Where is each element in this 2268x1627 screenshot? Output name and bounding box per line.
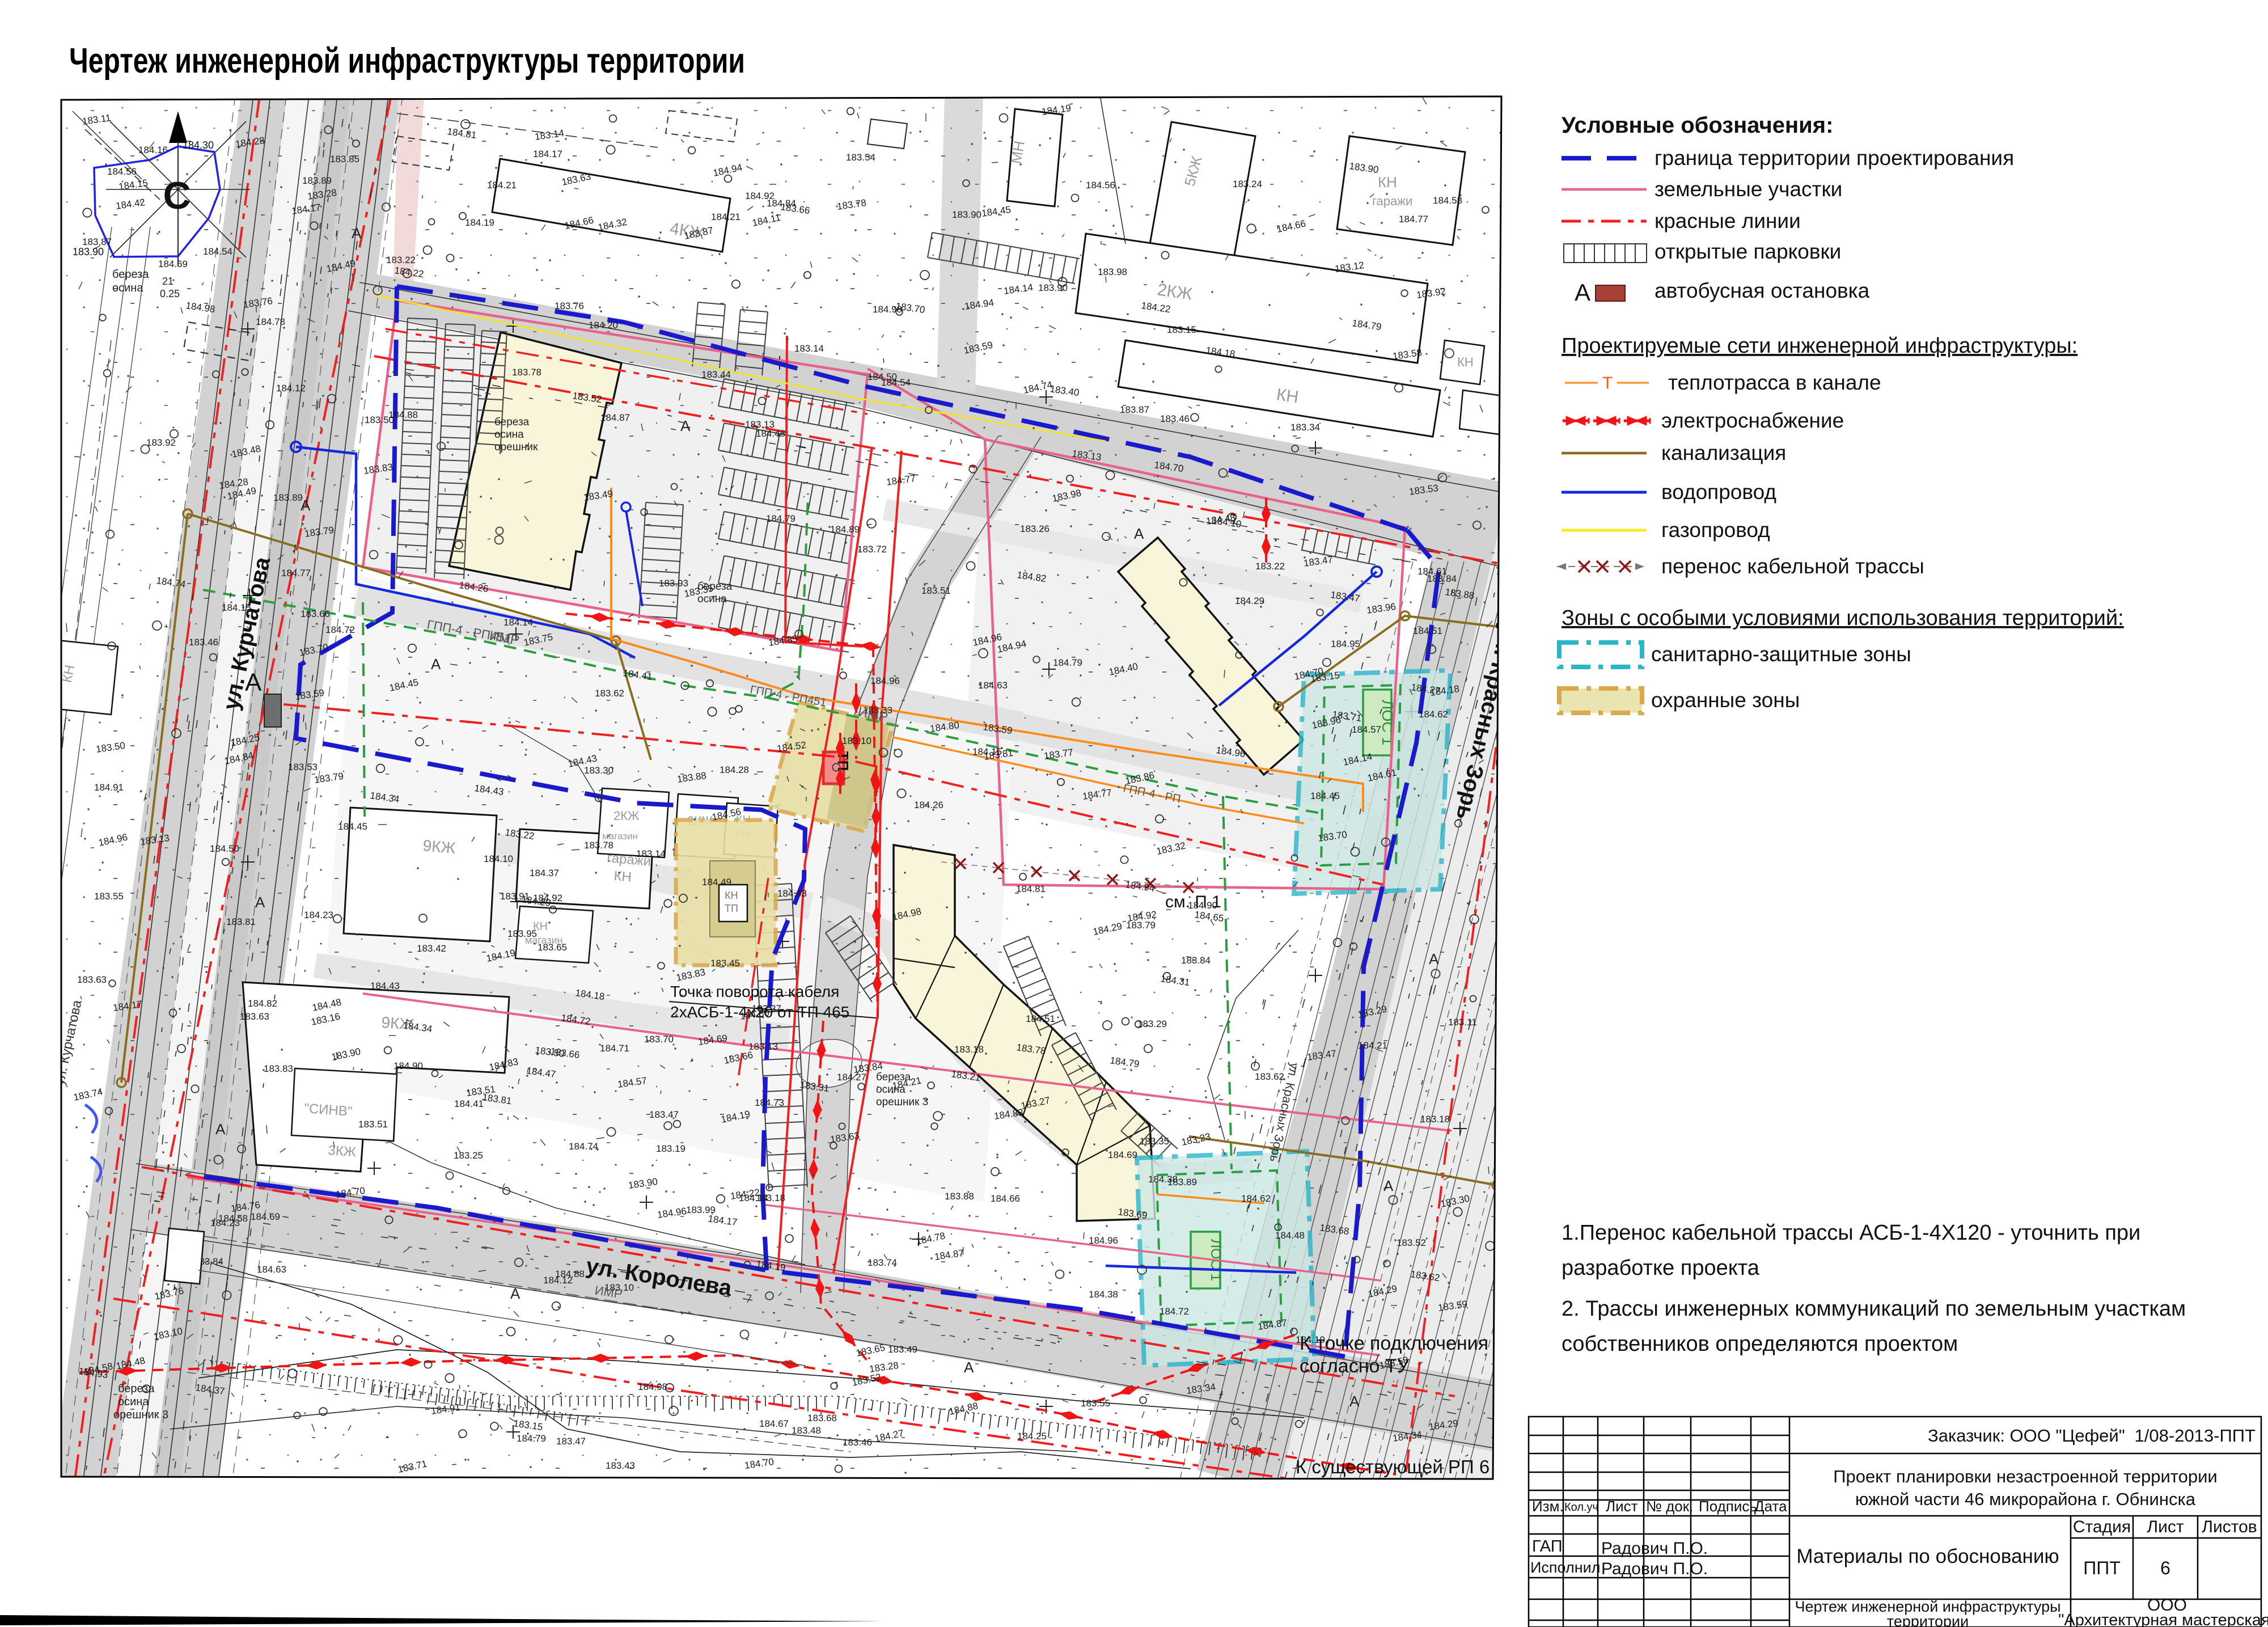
svg-text:183.63: 183.63: [240, 1011, 269, 1022]
svg-text:184.48: 184.48: [1275, 1230, 1305, 1241]
svg-text:184.43: 184.43: [777, 888, 807, 899]
svg-text:гаражи: гаражи: [1372, 194, 1412, 208]
svg-text:Радович П.О.: Радович П.О.: [1601, 1560, 1708, 1578]
svg-text:КН: КН: [1457, 355, 1474, 369]
svg-text:водопровод: водопровод: [1661, 480, 1776, 504]
svg-text:южной части 46 микрорайона г.: южной части 46 микрорайона г. Обнинска: [1855, 1489, 2196, 1509]
svg-text:184.25: 184.25: [1017, 1431, 1047, 1442]
svg-text:184.79: 184.79: [517, 1433, 546, 1444]
svg-text:184.45: 184.45: [1310, 791, 1340, 801]
svg-text:184.30: 184.30: [183, 140, 214, 151]
svg-text:184.90: 184.90: [393, 1060, 423, 1071]
svg-text:183.54: 183.54: [846, 152, 875, 163]
svg-text:А: А: [255, 894, 265, 911]
svg-text:183.93: 183.93: [659, 578, 688, 589]
svg-text:осина: осина: [876, 1084, 905, 1096]
svg-text:183.62: 183.62: [1255, 1071, 1284, 1082]
svg-text:орешник: орешник: [494, 441, 538, 453]
svg-text:граница территории проектирова: граница территории проектирования: [1655, 146, 2014, 170]
svg-text:А: А: [1429, 950, 1439, 967]
svg-text:184.27: 184.27: [837, 1072, 866, 1083]
svg-text:осина: осина: [697, 593, 727, 605]
svg-text:береза: береза: [112, 268, 149, 281]
svg-text:184.77: 184.77: [281, 568, 311, 578]
svg-text:осина: осина: [494, 429, 524, 441]
svg-text:А: А: [1575, 279, 1590, 306]
svg-text:184.63: 184.63: [257, 1264, 286, 1275]
svg-text:21: 21: [162, 276, 174, 287]
svg-text:183.87: 183.87: [1120, 404, 1149, 415]
svg-text:автобусная остановка: автобусная остановка: [1655, 279, 1870, 302]
svg-text:183.46: 183.46: [1160, 413, 1190, 424]
svg-text:Кол.уч: Кол.уч: [1564, 1501, 1598, 1514]
svg-text:184.69: 184.69: [158, 259, 188, 269]
svg-text:184.23: 184.23: [304, 910, 333, 920]
svg-text:184.20: 184.20: [589, 320, 618, 331]
svg-text:183.26: 183.26: [1020, 523, 1050, 534]
svg-text:183.45: 183.45: [710, 958, 740, 969]
svg-text:183.70: 183.70: [644, 1034, 674, 1045]
svg-text:184.21: 184.21: [711, 212, 741, 222]
svg-text:183.88: 183.88: [945, 1191, 974, 1202]
svg-text:183.85: 183.85: [330, 154, 359, 164]
svg-text:Точка поворота кабеля: Точка поворота кабеля: [670, 983, 839, 1000]
svg-text:184.71: 184.71: [600, 1043, 629, 1054]
svg-text:184.74: 184.74: [569, 1141, 598, 1152]
svg-text:Чертеж инженерной инфраструкт: Чертеж инженерной инфраструктуры террито…: [69, 41, 745, 81]
svg-text:А: А: [215, 1121, 226, 1138]
svg-text:1/08-2013-ППТ: 1/08-2013-ППТ: [2135, 1426, 2256, 1446]
svg-text:184.56: 184.56: [1086, 180, 1115, 191]
svg-text:183.51: 183.51: [358, 1119, 388, 1130]
svg-text:183.29: 183.29: [1137, 1019, 1167, 1029]
svg-text:184.91: 184.91: [94, 782, 124, 793]
svg-text:184.12: 184.12: [276, 383, 306, 394]
svg-text:184.89: 184.89: [830, 524, 860, 535]
svg-text:184.79: 184.79: [1053, 657, 1082, 668]
svg-text:184.51: 184.51: [1413, 626, 1442, 636]
svg-text:К точке подключения: К точке подключения: [1300, 1333, 1488, 1354]
svg-text:184.15: 184.15: [972, 746, 1002, 757]
svg-text:перенос кабельной трассы: перенос кабельной трассы: [1661, 555, 1924, 578]
svg-text:183.42: 183.42: [417, 943, 446, 954]
svg-text:183.24: 183.24: [1233, 179, 1262, 189]
svg-text:газопровод: газопровод: [1661, 518, 1770, 542]
svg-text:К существующей РП 6: К существующей РП 6: [1296, 1456, 1490, 1477]
svg-text:184.51: 184.51: [1026, 1013, 1055, 1024]
svg-text:№ док.: № док.: [1646, 1498, 1693, 1515]
svg-text:"Архитектурная мастерская": "Архитектурная мастерская": [2058, 1611, 2268, 1627]
svg-text:территории: территории: [1887, 1613, 1969, 1627]
svg-text:183.92: 183.92: [146, 437, 176, 448]
svg-text:183.55: 183.55: [1081, 1398, 1110, 1409]
svg-text:183.50: 183.50: [365, 415, 394, 425]
svg-text:184.58: 184.58: [218, 1213, 248, 1224]
svg-text:183.15: 183.15: [1167, 324, 1196, 335]
svg-text:184.82: 184.82: [248, 998, 277, 1009]
svg-text:Проект планировки незастроенно: Проект планировки незастроенной территор…: [1833, 1467, 2218, 1486]
svg-text:Подпись: Подпись: [1699, 1498, 1757, 1515]
svg-text:А: А: [352, 225, 362, 242]
svg-text:183.18: 183.18: [756, 1193, 785, 1203]
svg-text:183.51: 183.51: [921, 585, 951, 596]
svg-text:184.29: 184.29: [1235, 595, 1264, 606]
svg-text:санитарно-защитные зоны: санитарно-защитные зоны: [1651, 643, 1911, 666]
svg-text:183.55: 183.55: [94, 891, 124, 902]
svg-text:охранные зоны: охранные зоны: [1651, 688, 1800, 712]
svg-text:184.37: 184.37: [530, 868, 559, 878]
svg-text:183.13: 183.13: [748, 1041, 778, 1052]
svg-text:земельные участки: земельные участки: [1655, 178, 1842, 201]
svg-text:183.81: 183.81: [226, 916, 256, 927]
svg-text:184.10: 184.10: [484, 853, 513, 864]
svg-text:183.89: 183.89: [1167, 1177, 1197, 1188]
svg-text:183.46: 183.46: [843, 1437, 872, 1448]
svg-text:184.62: 184.62: [1241, 1193, 1271, 1204]
svg-text:184.69: 184.69: [251, 1211, 280, 1222]
svg-text:А: А: [1134, 525, 1144, 542]
svg-text:Зоны с особыми условиями испол: Зоны с особыми условиями использования т…: [1562, 606, 2124, 630]
svg-text:183.11: 183.11: [1448, 1017, 1477, 1028]
svg-text:184.43: 184.43: [370, 981, 400, 991]
svg-text:осина: осина: [118, 1396, 149, 1408]
svg-text:А: А: [964, 1359, 974, 1376]
svg-text:183.48: 183.48: [792, 1425, 821, 1436]
svg-text:183.49: 183.49: [888, 1344, 917, 1355]
svg-text:183.84: 183.84: [1181, 955, 1211, 966]
svg-text:184.98: 184.98: [638, 1381, 667, 1392]
svg-text:183.83: 183.83: [264, 1063, 293, 1074]
svg-text:184.84: 184.84: [767, 198, 796, 209]
svg-text:184.72: 184.72: [325, 624, 355, 635]
svg-text:184.69: 184.69: [1108, 1150, 1137, 1160]
svg-text:электроснабжение: электроснабжение: [1661, 409, 1844, 432]
svg-text:184.81: 184.81: [1016, 884, 1046, 894]
svg-text:1.Перенос кабельной трассы АС: 1.Перенос кабельной трассы АСБ-1-4Х120 -…: [1562, 1221, 2140, 1245]
svg-text:184.17: 184.17: [533, 149, 562, 159]
svg-text:184.62: 184.62: [1419, 709, 1448, 720]
svg-text:184.26: 184.26: [914, 800, 943, 810]
svg-text:183.78: 183.78: [512, 367, 541, 378]
svg-text:184.72: 184.72: [1160, 1306, 1189, 1317]
svg-text:184.96: 184.96: [1089, 1235, 1118, 1246]
svg-text:183.47: 183.47: [649, 1109, 679, 1120]
svg-text:2хАСБ-1-4х20 от ТП 465: 2хАСБ-1-4х20 от ТП 465: [670, 1003, 849, 1021]
svg-text:183.47: 183.47: [556, 1436, 586, 1447]
svg-text:184.50: 184.50: [210, 843, 239, 854]
svg-text:184.79: 184.79: [766, 513, 796, 524]
svg-text:ГАП: ГАП: [1532, 1537, 1563, 1556]
svg-text:183.68: 183.68: [807, 1413, 837, 1423]
svg-text:Стадия: Стадия: [2073, 1518, 2131, 1536]
svg-text:183.63: 183.63: [77, 974, 107, 985]
svg-text:С: С: [163, 174, 191, 217]
svg-text:184.58: 184.58: [1433, 195, 1462, 206]
svg-text:183.76: 183.76: [555, 301, 584, 311]
svg-text:183.95: 183.95: [507, 928, 537, 939]
svg-text:183.89: 183.89: [273, 492, 303, 503]
svg-text:ТП: ТП: [725, 903, 738, 914]
svg-text:Листов: Листов: [2202, 1518, 2257, 1536]
svg-text:183.22: 183.22: [1255, 561, 1285, 572]
svg-text:184.87: 184.87: [600, 412, 630, 423]
svg-text:Радович П.О.: Радович П.О.: [1601, 1539, 1708, 1558]
svg-text:183.65: 183.65: [538, 942, 567, 953]
svg-text:183.72: 183.72: [857, 544, 887, 555]
svg-text:184.21: 184.21: [1358, 1040, 1387, 1051]
svg-text:183.90: 183.90: [73, 246, 104, 257]
svg-text:А: А: [1383, 1177, 1394, 1194]
svg-text:183.90: 183.90: [952, 209, 981, 220]
svg-text:Изм.: Изм.: [1532, 1498, 1564, 1515]
svg-text:183.14: 183.14: [794, 343, 824, 354]
svg-text:КН: КН: [725, 890, 738, 901]
svg-text:183.10: 183.10: [842, 736, 871, 746]
svg-text:Дата: Дата: [1754, 1498, 1787, 1515]
svg-text:184.57: 184.57: [1352, 724, 1381, 735]
svg-text:184.61: 184.61: [1417, 566, 1447, 577]
svg-text:А: А: [431, 656, 441, 673]
svg-text:183.18: 183.18: [954, 1044, 984, 1055]
svg-text:184.56: 184.56: [107, 166, 137, 177]
svg-text:А: А: [510, 1285, 521, 1302]
svg-text:184.73: 184.73: [755, 1097, 784, 1108]
svg-text:береза: береза: [697, 581, 733, 593]
svg-text:183.62: 183.62: [595, 688, 624, 699]
svg-text:184.45: 184.45: [338, 821, 367, 832]
svg-text:184.96: 184.96: [870, 675, 900, 686]
svg-text:КН: КН: [1275, 385, 1300, 407]
svg-text:Материалы по обоснованию: Материалы по обоснованию: [1796, 1545, 2059, 1567]
svg-text:орешник 3: орешник 3: [876, 1096, 928, 1108]
svg-text:183.43: 183.43: [606, 1460, 635, 1471]
svg-text:6: 6: [2160, 1558, 2170, 1578]
svg-text:184.95: 184.95: [1331, 639, 1360, 649]
svg-text:открытые парковки: открытые парковки: [1655, 240, 1841, 263]
svg-text:2КЖ: 2КЖ: [613, 809, 640, 823]
svg-text:красные линии: красные линии: [1655, 209, 1801, 233]
svg-text:183.78: 183.78: [584, 840, 613, 851]
svg-text:184.49: 184.49: [702, 877, 731, 888]
svg-text:184.21: 184.21: [487, 180, 517, 191]
svg-text:184.78: 184.78: [256, 316, 285, 327]
svg-text:184.66: 184.66: [991, 1193, 1020, 1204]
svg-text:184.98: 184.98: [873, 304, 902, 315]
svg-text:183.35: 183.35: [1140, 1136, 1169, 1147]
svg-text:184.12: 184.12: [543, 1275, 573, 1286]
svg-text:осина: осина: [112, 282, 143, 294]
svg-text:Условные обозначения:: Условные обозначения:: [1562, 113, 1833, 138]
svg-text:9КЖ: 9КЖ: [422, 836, 456, 857]
svg-text:183.53: 183.53: [288, 762, 318, 772]
svg-text:А: А: [301, 497, 311, 514]
svg-text:183.99: 183.99: [686, 1205, 716, 1215]
svg-text:А: А: [1349, 1393, 1360, 1410]
svg-text:183.52: 183.52: [1397, 1237, 1426, 1248]
svg-text:184.63: 184.63: [978, 680, 1008, 691]
svg-text:184.54: 184.54: [881, 377, 911, 388]
svg-text:184.92: 184.92: [533, 893, 562, 903]
svg-text:КН: КН: [613, 868, 632, 885]
svg-text:3КЖ: 3КЖ: [328, 1143, 357, 1160]
svg-text:183.46: 183.46: [189, 637, 218, 648]
svg-text:183.22: 183.22: [386, 255, 416, 265]
svg-text:2. Трассы инженерных коммуника: 2. Трассы инженерных коммуникаций по зем…: [1562, 1297, 2186, 1321]
svg-text:орешник 3: орешник 3: [113, 1409, 168, 1421]
svg-text:183.98: 183.98: [1098, 267, 1127, 277]
svg-text:184.14: 184.14: [503, 617, 533, 628]
svg-text:ТП: ТП: [835, 751, 852, 771]
svg-text:ППТ: ППТ: [2083, 1558, 2121, 1578]
svg-text:А: А: [680, 417, 691, 434]
svg-text:Т: Т: [1602, 374, 1613, 392]
svg-text:183.44: 183.44: [701, 369, 731, 380]
svg-text:береза: береза: [118, 1383, 155, 1395]
svg-text:183.25: 183.25: [454, 1150, 483, 1161]
svg-text:183.89: 183.89: [302, 175, 332, 186]
svg-text:184.54: 184.54: [203, 246, 232, 257]
svg-text:183.66: 183.66: [301, 608, 330, 619]
svg-text:канализация: канализация: [1661, 441, 1786, 464]
svg-text:теплотрасса в канале: теплотрасса в канале: [1668, 371, 1881, 394]
svg-text:собственников определяются про: собственников определяются проектом: [1562, 1332, 1958, 1356]
svg-text:183.90: 183.90: [1038, 282, 1068, 293]
svg-text:183.19: 183.19: [656, 1143, 686, 1154]
svg-text:разработке проекта: разработке проекта: [1562, 1256, 1760, 1280]
svg-text:183.74: 183.74: [868, 1257, 897, 1268]
svg-text:согласно ТУ: согласно ТУ: [1300, 1355, 1410, 1377]
svg-text:183.18: 183.18: [1420, 1114, 1450, 1125]
svg-text:184.77: 184.77: [1399, 214, 1428, 225]
svg-text:184.41: 184.41: [454, 1098, 484, 1109]
svg-text:183.14: 183.14: [636, 848, 666, 859]
svg-text:Лист: Лист: [1606, 1498, 1638, 1515]
svg-text:184.38: 184.38: [1089, 1289, 1118, 1300]
svg-text:Исполнил: Исполнил: [1530, 1559, 1600, 1576]
svg-text:184.19: 184.19: [465, 217, 494, 228]
svg-text:183.34: 183.34: [1290, 422, 1320, 433]
svg-text:184.28: 184.28: [720, 764, 749, 775]
svg-text:183.30: 183.30: [584, 765, 613, 776]
svg-text:184.67: 184.67: [759, 1418, 789, 1429]
svg-text:береза: береза: [876, 1071, 911, 1083]
svg-text:Проектируемые сети инженерной: Проектируемые сети инженерной инфраструк…: [1562, 334, 2077, 358]
svg-text:0.25: 0.25: [160, 288, 180, 299]
svg-text:184.90: 184.90: [1188, 900, 1217, 911]
svg-text:Заказчик: ООО "Цефей": Заказчик: ООО "Цефей": [1928, 1426, 2125, 1446]
svg-text:Лист: Лист: [2147, 1518, 2184, 1536]
svg-text:КН: КН: [1378, 174, 1397, 191]
svg-text:183.13: 183.13: [745, 419, 775, 430]
svg-text:береза: береза: [494, 416, 530, 428]
